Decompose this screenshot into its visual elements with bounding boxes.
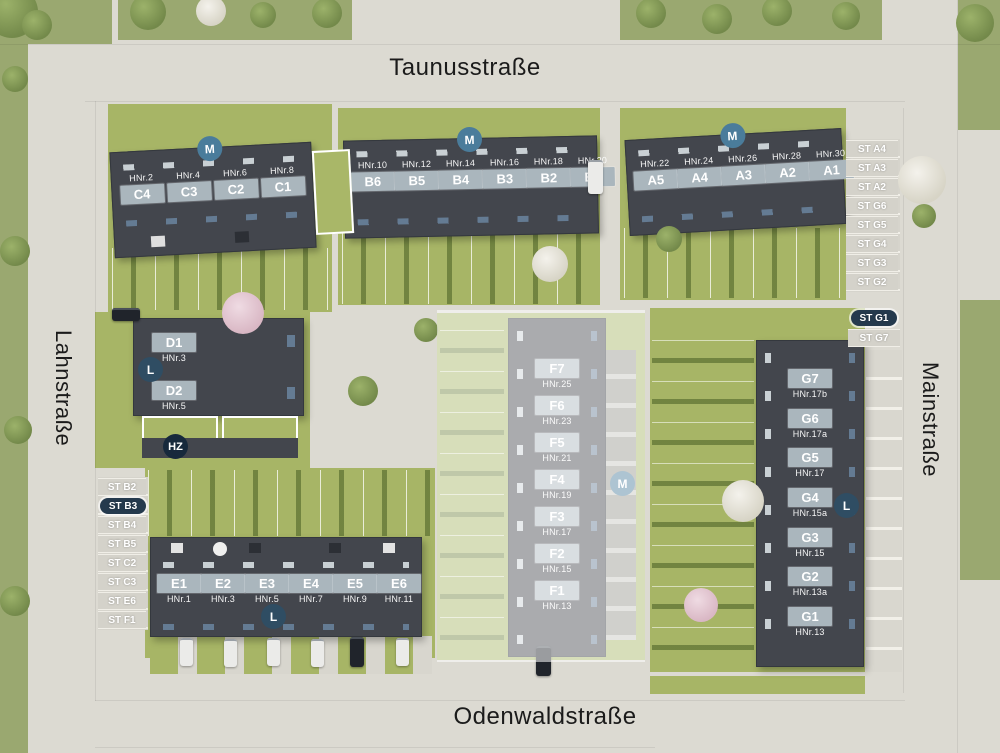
- house-number-label: HNr.13: [795, 628, 824, 637]
- roof-terrace-object: [151, 236, 166, 248]
- tree: [684, 588, 718, 622]
- building-c: M HNr.2 C4 HNr.4 C3 HNr.6 C2 HNr.8 C1: [109, 142, 316, 258]
- roof-object: [249, 543, 261, 553]
- roof-object: [213, 542, 227, 556]
- badge-hz: HZ: [163, 434, 188, 459]
- unit-code-label: A3: [721, 164, 766, 185]
- phase-overlay: [437, 310, 645, 662]
- house-number-label: HNr.17: [795, 469, 824, 478]
- unit-c3[interactable]: HNr.4 C3: [166, 170, 212, 202]
- windows: [358, 215, 586, 226]
- tree: [250, 2, 276, 28]
- unit-code-label: A2: [765, 162, 810, 183]
- car: [112, 308, 140, 321]
- unit-g7[interactable]: G7 HNr.17b: [788, 369, 832, 399]
- parking-label-st-g4[interactable]: ST G4: [846, 236, 898, 252]
- unit-code-label: E3: [245, 574, 289, 593]
- unit-d2[interactable]: D2 HNr.5: [152, 381, 196, 411]
- house-number-label: HNr.14: [446, 159, 475, 169]
- unit-code-label: B3: [483, 169, 527, 189]
- unit-code-label: G1: [788, 607, 832, 626]
- windows: [287, 335, 295, 347]
- badge-m-building-c: M: [197, 135, 223, 161]
- roof-object: [171, 543, 183, 553]
- unit-e2[interactable]: E2 HNr.3: [201, 574, 245, 604]
- unit-code-label: E5: [333, 574, 377, 593]
- street-name-taunusstrasse: Taunusstraße: [340, 54, 590, 82]
- house-number-label: HNr.7: [299, 595, 323, 604]
- unit-code-label: B5: [395, 171, 439, 191]
- unit-code-label: G5: [788, 448, 832, 467]
- unit-code-label: B2: [527, 168, 571, 188]
- car: [311, 639, 324, 667]
- unit-c2[interactable]: HNr.6 C2: [213, 168, 259, 200]
- unit-code-label: B6: [351, 172, 395, 192]
- roof-terrace-object: [235, 231, 250, 243]
- unit-a2[interactable]: HNr.28 A2: [764, 151, 810, 183]
- tree: [532, 246, 568, 282]
- unit-a5[interactable]: HNr.22 A5: [633, 158, 679, 190]
- unit-code-label: C3: [167, 181, 212, 202]
- parking-label-st-c3[interactable]: ST C3: [98, 574, 146, 590]
- house-number-label: HNr.18: [534, 157, 563, 167]
- house-number-label: HNr.16: [490, 158, 519, 168]
- unit-code-label: G3: [788, 528, 832, 547]
- house-number-label: HNr.3: [211, 595, 235, 604]
- house-number-label: HNr.2: [129, 173, 153, 183]
- parking-label-st-b5[interactable]: ST B5: [98, 536, 146, 552]
- car: [396, 638, 409, 666]
- tree: [956, 4, 994, 42]
- building-b: M HNr.10 B6 HNr.12 B5 HNr.14 B4 HNr.16 B…: [343, 135, 599, 238]
- unit-g1[interactable]: G1 HNr.13: [788, 607, 832, 637]
- tree: [0, 586, 30, 616]
- street-name-mainstrasse: Mainstraße: [917, 362, 943, 477]
- parking-label-st-g6[interactable]: ST G6: [846, 198, 898, 214]
- house-number-label: HNr.22: [640, 159, 670, 170]
- parking-label-st-g7[interactable]: ST G7: [848, 330, 900, 346]
- parking-label-st-g2[interactable]: ST G2: [846, 274, 898, 290]
- parking-label-st-g5[interactable]: ST G5: [846, 217, 898, 233]
- parking-label-st-b3[interactable]: ST B3: [100, 498, 146, 514]
- house-number-label: HNr.26: [728, 154, 758, 165]
- garden-plots: [112, 248, 330, 310]
- parking-label-st-a4[interactable]: ST A4: [846, 141, 898, 157]
- house-number-label: HNr.8: [270, 166, 294, 176]
- house-number-label: HNr.24: [684, 156, 714, 167]
- car: [267, 638, 280, 666]
- tree: [912, 204, 936, 228]
- house-number-label: HNr.1: [167, 595, 191, 604]
- street-name-lahnstrasse: Lahnstraße: [50, 330, 76, 446]
- tree: [702, 4, 732, 34]
- windows: [163, 624, 409, 630]
- parking-label-st-c2[interactable]: ST C2: [98, 555, 146, 571]
- unit-e1[interactable]: E1 HNr.1: [157, 574, 201, 604]
- house-number-label: HNr.10: [358, 161, 387, 171]
- unit-b3[interactable]: HNr.16 B3: [482, 158, 527, 189]
- parking-label-st-f1[interactable]: ST F1: [98, 612, 146, 628]
- unit-code-label: G6: [788, 409, 832, 428]
- unit-a3[interactable]: HNr.26 A3: [721, 153, 767, 185]
- unit-code-label: C4: [120, 184, 165, 205]
- house-number-label: HNr.6: [223, 168, 247, 178]
- tree: [898, 156, 946, 204]
- car: [180, 638, 193, 666]
- badge-l-building-g: L: [834, 493, 859, 518]
- house-number-label: HNr.5: [255, 595, 279, 604]
- roof-object: [383, 543, 395, 553]
- tree: [832, 2, 860, 30]
- parking-label-st-b2[interactable]: ST B2: [98, 479, 146, 495]
- parking-label-st-g3[interactable]: ST G3: [846, 255, 898, 271]
- tree: [222, 292, 264, 334]
- unit-g2[interactable]: G2 HNr.13a: [788, 567, 832, 597]
- tree: [656, 226, 682, 252]
- unit-g4[interactable]: G4 HNr.15a: [788, 488, 832, 518]
- building-d: L D1 HNr.3 D2 HNr.5: [133, 318, 304, 416]
- house-number-label: HNr.17b: [793, 390, 827, 399]
- unit-e6[interactable]: E6 HNr.11: [377, 574, 421, 604]
- unit-c1[interactable]: HNr.8 C1: [260, 165, 306, 197]
- parking-strip: [866, 350, 902, 672]
- tree: [722, 480, 764, 522]
- parking-label-st-g1[interactable]: ST G1: [851, 310, 897, 326]
- unit-e4[interactable]: E4 HNr.7: [289, 574, 333, 604]
- unit-b2[interactable]: HNr.18 B2: [526, 157, 571, 188]
- house-number-label: HNr.30: [816, 149, 846, 160]
- unit-d1[interactable]: D1 HNr.3: [152, 333, 196, 363]
- unit-b4[interactable]: HNr.14 B4: [438, 159, 483, 190]
- badge-l-building-e: L: [261, 604, 286, 629]
- windows: [287, 387, 295, 399]
- car: [224, 639, 237, 667]
- roof-object: [329, 543, 341, 553]
- unit-code-label: G2: [788, 567, 832, 586]
- unit-code-label: A4: [677, 167, 722, 188]
- building-e: E1 HNr.1 E2 HNr.3 E3 HNr.5 E4 HNr.7 E5 H…: [150, 537, 422, 637]
- unit-c4[interactable]: HNr.2 C4: [119, 173, 165, 205]
- unit-code-label: E1: [157, 574, 201, 593]
- parking-label-st-e6[interactable]: ST E6: [98, 593, 146, 609]
- tree: [2, 66, 28, 92]
- house-number-label: HNr.4: [176, 171, 200, 181]
- car: [350, 637, 364, 667]
- badge-l-building-d: L: [138, 357, 163, 382]
- unit-code-label: C1: [260, 176, 305, 197]
- site-plan: M HNr.2 C4 HNr.4 C3 HNr.6 C2 HNr.8 C1: [0, 0, 1000, 753]
- house-number-label: HNr.3: [162, 354, 186, 363]
- garden-plots: [148, 470, 432, 536]
- sidewalk-line: [95, 747, 655, 748]
- building-a: M HNr.22 A5 HNr.24 A4 HNr.26 A3 HNr.28 A…: [624, 128, 846, 236]
- windows: [126, 211, 302, 226]
- grass-area: [650, 676, 865, 694]
- unit-code-label: A5: [633, 169, 678, 190]
- tree: [348, 376, 378, 406]
- sidewalk-line: [957, 0, 958, 753]
- house-number-label: HNr.5: [162, 402, 186, 411]
- unit-code-label: G7: [788, 369, 832, 388]
- unit-code-label: C2: [214, 179, 259, 200]
- building-g: G7 HNr.17b G6 HNr.17a G5 HNr.17 G4 HNr.1…: [756, 340, 864, 667]
- unit-b5[interactable]: HNr.12 B5: [394, 160, 439, 191]
- unit-code-label: D1: [152, 333, 196, 352]
- parking-label-st-a2[interactable]: ST A2: [846, 179, 898, 195]
- house-number-label: HNr.13a: [793, 588, 827, 597]
- unit-code-label: B4: [439, 170, 483, 190]
- sidewalk-line: [85, 101, 905, 102]
- unit-code-label: E2: [201, 574, 245, 593]
- house-number-label: HNr.17a: [793, 430, 827, 439]
- unit-code-label: G4: [788, 488, 832, 507]
- house-number-label: HNr.28: [772, 151, 802, 162]
- unit-g3[interactable]: G3 HNr.15: [788, 528, 832, 558]
- tree: [0, 236, 30, 266]
- car: [588, 160, 603, 194]
- skylights: [163, 562, 409, 568]
- grass-area: [960, 300, 1000, 580]
- tree: [22, 10, 52, 40]
- parking-label-st-b4[interactable]: ST B4: [98, 517, 146, 533]
- unit-code-label: D2: [152, 381, 196, 400]
- tree: [4, 416, 32, 444]
- garden-cell: [222, 416, 298, 440]
- unit-g5[interactable]: G5 HNr.17: [788, 448, 832, 478]
- parking-label-st-a3[interactable]: ST A3: [846, 160, 898, 176]
- house-number-label: HNr.15a: [793, 509, 827, 518]
- tree: [414, 318, 438, 342]
- house-number-label: HNr.15: [795, 549, 824, 558]
- house-number-label: HNr.9: [343, 595, 367, 604]
- unit-a4[interactable]: HNr.24 A4: [677, 156, 723, 188]
- house-number-label: HNr.12: [402, 160, 431, 170]
- unit-b6[interactable]: HNr.10 B6: [350, 161, 395, 192]
- unit-e5[interactable]: E5 HNr.9: [333, 574, 377, 604]
- unit-code-label: E6: [377, 574, 421, 593]
- grass-area: [0, 0, 28, 753]
- unit-g6[interactable]: G6 HNr.17a: [788, 409, 832, 439]
- windows: [642, 206, 833, 223]
- sidewalk-line: [95, 700, 905, 701]
- unit-code-label: E4: [289, 574, 333, 593]
- sidewalk-line: [0, 44, 1000, 45]
- unit-e3[interactable]: E3 HNr.5: [245, 574, 289, 604]
- house-number-label: HNr.11: [385, 595, 414, 604]
- empty-plot: [312, 149, 354, 235]
- sidewalk-line: [95, 101, 96, 701]
- street-name-odenwaldstrasse: Odenwaldstraße: [420, 703, 670, 731]
